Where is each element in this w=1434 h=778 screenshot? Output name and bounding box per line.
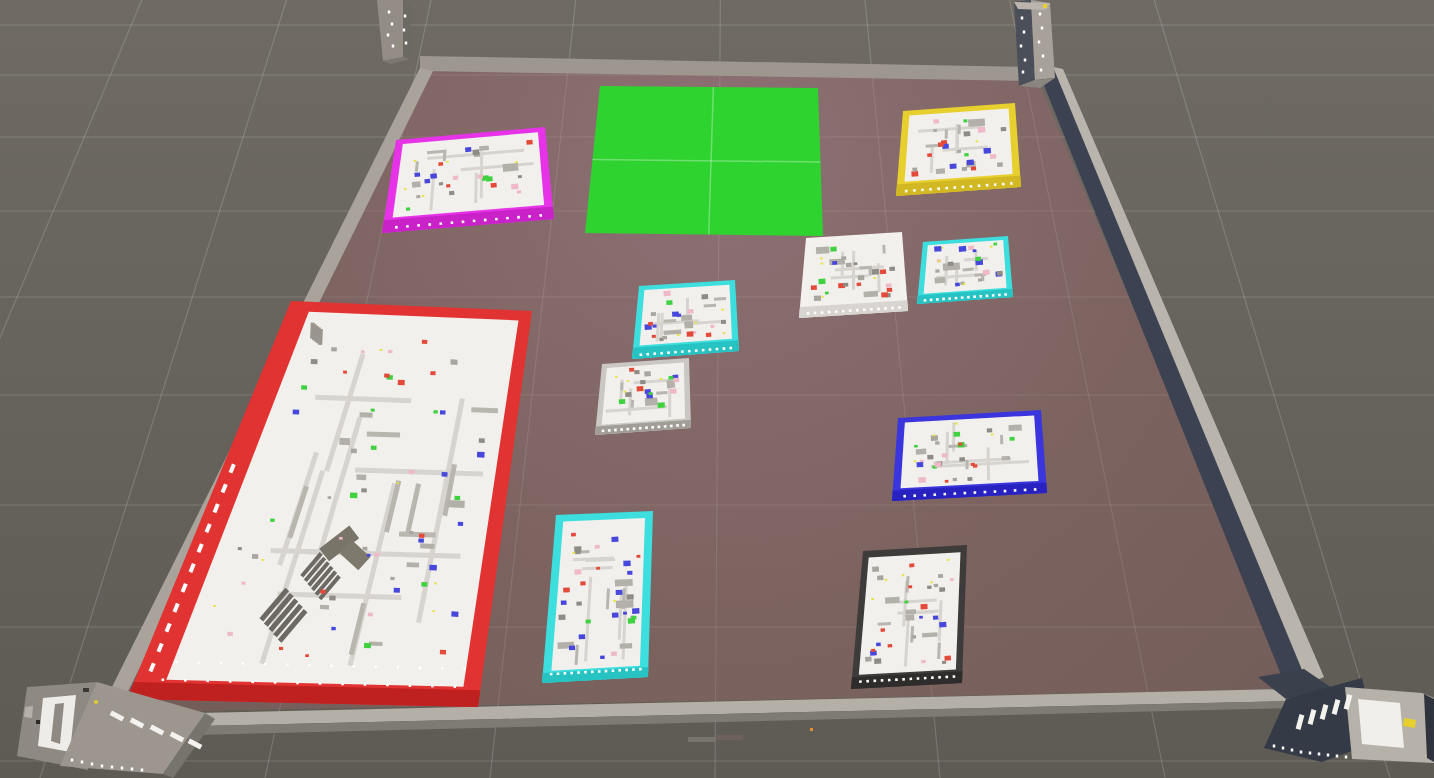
scene-detail xyxy=(330,664,332,666)
scene-detail xyxy=(955,283,960,287)
scene-detail xyxy=(388,350,392,353)
scene-detail xyxy=(343,371,347,374)
scene-detail xyxy=(361,488,367,492)
scene-detail xyxy=(350,492,358,498)
scene-detail xyxy=(660,352,663,355)
scene-detail xyxy=(881,628,886,632)
scene-detail xyxy=(262,559,265,561)
scene-detail xyxy=(970,185,973,188)
scene-detail xyxy=(921,188,924,191)
scene-detail xyxy=(320,590,325,594)
scene-detail xyxy=(511,184,519,190)
house-gray[interactable] xyxy=(595,358,691,435)
scene-detail xyxy=(933,493,936,496)
scene-detail xyxy=(251,681,254,684)
scene-detail xyxy=(930,581,933,583)
scene-detail xyxy=(936,298,939,301)
scene-detail xyxy=(473,219,476,222)
scene-detail xyxy=(973,249,977,252)
scene-detail xyxy=(984,491,987,494)
scene-detail xyxy=(446,161,449,163)
scene-detail xyxy=(651,426,654,429)
scene-canvas[interactable] xyxy=(0,0,1434,778)
scene-detail xyxy=(846,263,852,268)
scene-detail xyxy=(605,670,608,673)
scene-detail xyxy=(961,296,964,299)
scene-detail xyxy=(919,616,923,619)
scene-detail xyxy=(938,260,941,262)
scene-detail xyxy=(963,492,966,495)
scene-detail xyxy=(517,216,520,219)
scene-detail xyxy=(905,614,914,620)
scene-detail xyxy=(371,409,375,412)
game-viewport[interactable] xyxy=(0,0,1434,778)
scene-detail xyxy=(611,651,617,656)
scene-detail xyxy=(955,297,958,300)
bunker-bottom-left-face-3 xyxy=(24,706,33,718)
scene-detail xyxy=(1001,127,1007,131)
scene-detail xyxy=(645,426,648,429)
scene-detail xyxy=(625,669,628,672)
scene-detail xyxy=(904,600,908,603)
scene-detail xyxy=(902,574,905,576)
scene-detail xyxy=(729,347,732,350)
scene-detail xyxy=(296,682,299,685)
scene-detail xyxy=(409,470,415,475)
scene-detail xyxy=(942,298,945,301)
scene-detail xyxy=(270,519,275,523)
scene-detail xyxy=(580,581,585,585)
scene-detail xyxy=(924,299,927,302)
scene-detail xyxy=(368,613,373,617)
scene-detail xyxy=(849,309,852,312)
scene-detail xyxy=(220,662,222,664)
scene-detail xyxy=(434,582,437,584)
scene-detail xyxy=(570,672,573,675)
scene-detail xyxy=(902,678,905,681)
scene-detail xyxy=(640,380,646,384)
scene-detail xyxy=(973,464,978,468)
scene-detail xyxy=(319,682,322,685)
scene-detail xyxy=(687,331,694,336)
scene-detail xyxy=(978,127,986,133)
scene-detail xyxy=(927,455,933,460)
scene-detail xyxy=(955,423,958,425)
scene-detail xyxy=(616,600,634,608)
scene-detail xyxy=(518,175,522,178)
scene-detail xyxy=(229,680,232,683)
scene-detail xyxy=(953,478,957,481)
scene-detail xyxy=(359,412,372,417)
scene-detail xyxy=(937,187,940,190)
scene-detail xyxy=(279,647,283,650)
scene-detail xyxy=(721,309,724,311)
scene-detail xyxy=(670,425,673,428)
scene-detail xyxy=(364,683,367,686)
scene-detail xyxy=(1291,749,1294,752)
scene-detail xyxy=(873,277,876,279)
scene-detail xyxy=(963,131,970,136)
scene-detail xyxy=(1041,27,1044,30)
scene-detail xyxy=(1034,488,1037,491)
scene-detail xyxy=(922,632,938,637)
scene-detail xyxy=(992,294,995,297)
scene-detail xyxy=(912,167,917,171)
debris xyxy=(688,737,716,742)
scene-detail xyxy=(961,186,964,189)
scene-detail xyxy=(660,378,663,380)
scene-detail xyxy=(911,171,918,177)
scene-detail xyxy=(450,359,457,365)
scene-detail xyxy=(453,176,459,180)
scene-detail xyxy=(978,184,981,187)
scene-detail xyxy=(694,322,697,324)
green-spawn-zone[interactable] xyxy=(585,86,823,236)
scene-detail xyxy=(895,678,898,681)
house-cyan-right[interactable] xyxy=(917,236,1013,304)
scene-detail xyxy=(1010,182,1013,185)
scene-detail xyxy=(414,160,417,162)
scene-detail xyxy=(920,604,927,610)
scene-detail xyxy=(328,496,332,499)
scene-detail xyxy=(716,348,719,351)
scene-detail xyxy=(950,578,954,581)
scene-detail xyxy=(571,533,576,537)
scene-detail xyxy=(639,668,642,671)
scene-detail xyxy=(953,432,960,437)
scene-detail xyxy=(914,445,918,448)
scene-detail xyxy=(213,605,216,607)
scene-detail xyxy=(409,531,413,534)
scene-detail xyxy=(626,594,633,600)
scene-detail xyxy=(963,283,966,285)
scene-detail xyxy=(681,350,684,353)
scene-detail xyxy=(872,566,879,571)
scene-detail xyxy=(419,534,425,538)
scene-detail xyxy=(320,605,329,610)
scene-detail xyxy=(486,176,493,181)
scene-detail xyxy=(816,246,830,254)
scene-detail xyxy=(620,428,623,431)
scene-detail xyxy=(390,577,394,580)
scene-detail xyxy=(429,565,437,571)
scene-detail xyxy=(311,359,318,364)
scene-detail xyxy=(934,246,941,252)
scene-detail xyxy=(876,643,881,647)
scene-detail xyxy=(909,563,914,567)
scene-detail xyxy=(433,410,437,413)
scene-detail xyxy=(959,457,965,461)
scene-detail xyxy=(449,191,455,195)
scene-detail xyxy=(929,188,932,191)
scene-detail xyxy=(293,409,300,414)
scene-detail xyxy=(632,608,640,614)
scene-detail xyxy=(375,666,377,668)
scene-detail xyxy=(374,553,379,557)
scene-detail xyxy=(584,671,587,674)
scene-detail xyxy=(706,333,712,337)
scene-detail xyxy=(241,582,245,585)
house-cyan-center[interactable] xyxy=(632,280,739,359)
scene-detail xyxy=(1042,55,1045,58)
scene-detail xyxy=(677,334,680,336)
scene-detail xyxy=(612,669,615,672)
scene-detail xyxy=(886,283,892,287)
scene-detail xyxy=(935,462,942,467)
scene-detail xyxy=(973,295,976,298)
scene-detail xyxy=(141,769,144,772)
scene-detail xyxy=(451,611,458,617)
scene-detail xyxy=(881,679,884,682)
scene-detail xyxy=(935,269,939,272)
house-magenta[interactable] xyxy=(382,127,554,233)
scene-detail xyxy=(419,667,421,669)
grid-line xyxy=(471,410,498,411)
scene-detail xyxy=(439,222,442,225)
scene-detail xyxy=(888,644,893,648)
scene-detail xyxy=(921,660,926,664)
scene-detail xyxy=(1020,45,1023,48)
scene-detail xyxy=(830,247,837,252)
scene-detail xyxy=(684,321,693,329)
scene-detail xyxy=(453,685,456,688)
scene-detail xyxy=(963,119,967,122)
scene-detail xyxy=(856,309,859,312)
scene-detail xyxy=(723,332,726,334)
scene-detail xyxy=(598,670,601,673)
grid-line xyxy=(416,161,417,171)
scene-detail xyxy=(440,410,446,414)
scene-detail xyxy=(820,257,823,259)
grid-line xyxy=(931,146,932,173)
scene-detail xyxy=(404,188,407,190)
grid-line xyxy=(963,269,974,270)
scene-detail xyxy=(627,571,632,575)
scene-detail xyxy=(611,537,618,542)
scene-detail xyxy=(885,579,888,581)
scene-detail xyxy=(274,681,277,684)
scene-detail xyxy=(677,314,681,317)
scene-detail xyxy=(968,118,985,126)
bunker-bottom-right-face-3 xyxy=(1358,699,1404,748)
scene-detail xyxy=(577,671,580,674)
scene-detail xyxy=(329,595,336,600)
scene-detail xyxy=(602,430,605,433)
scene-detail xyxy=(600,656,605,660)
scene-detail xyxy=(634,370,639,374)
grid-line xyxy=(657,313,659,341)
scene-detail xyxy=(1024,489,1027,492)
scene-detail xyxy=(479,146,489,151)
scene-detail xyxy=(406,225,409,228)
scene-detail xyxy=(872,269,879,275)
scene-detail xyxy=(978,278,982,281)
grid-line xyxy=(714,299,726,300)
scene-detail xyxy=(942,661,946,664)
scene-detail xyxy=(339,537,343,540)
scene-detail xyxy=(821,311,824,314)
scene-detail xyxy=(569,645,575,650)
scene-detail xyxy=(576,601,582,605)
scene-detail xyxy=(463,668,465,670)
scene-detail xyxy=(619,399,626,404)
scene-detail xyxy=(502,163,518,172)
scene-detail xyxy=(286,663,288,665)
scene-detail xyxy=(484,219,487,222)
house-cyan-tall[interactable] xyxy=(542,511,653,683)
scene-detail xyxy=(71,759,74,762)
scene-detail xyxy=(998,294,1001,297)
scene-detail xyxy=(633,427,636,430)
scene-detail xyxy=(526,140,533,145)
scene-detail xyxy=(616,590,623,595)
scene-detail xyxy=(94,701,98,704)
scene-detail xyxy=(391,23,394,26)
scene-detail xyxy=(987,428,993,432)
scene-detail xyxy=(938,574,943,578)
scene-detail xyxy=(458,522,463,526)
scene-detail xyxy=(997,162,1003,167)
scene-detail xyxy=(859,680,862,683)
scene-detail xyxy=(884,307,887,310)
grid-line xyxy=(878,623,891,624)
scene-detail xyxy=(1273,745,1276,748)
scene-detail xyxy=(1024,59,1027,62)
grid-line xyxy=(656,392,667,393)
scene-detail xyxy=(1309,752,1312,755)
scene-detail xyxy=(175,661,177,663)
grid-line xyxy=(926,145,940,146)
scene-detail xyxy=(1010,437,1015,441)
scene-detail xyxy=(688,737,716,742)
scene-detail xyxy=(649,392,653,395)
scene-detail xyxy=(595,545,600,549)
scene-detail xyxy=(814,295,821,301)
scene-detail xyxy=(428,223,431,226)
scene-detail xyxy=(83,688,89,692)
scene-detail xyxy=(1022,71,1025,74)
scene-detail xyxy=(631,616,636,620)
scene-detail xyxy=(404,15,407,18)
scene-detail xyxy=(905,190,908,193)
scene-detail xyxy=(913,189,916,192)
scene-detail xyxy=(387,34,390,37)
scene-detail xyxy=(301,385,307,390)
scene-detail xyxy=(450,221,453,224)
scene-detail xyxy=(198,661,200,663)
scene-detail xyxy=(586,619,591,623)
grid-line xyxy=(399,534,436,535)
scene-detail xyxy=(936,168,945,174)
scene-detail xyxy=(938,676,941,679)
scene-detail xyxy=(950,163,957,169)
scene-detail xyxy=(983,148,991,154)
scene-detail xyxy=(701,294,708,299)
scene-detail xyxy=(495,218,498,221)
scene-detail xyxy=(238,547,242,550)
scene-detail xyxy=(442,472,448,477)
scene-detail xyxy=(430,371,435,375)
scene-detail xyxy=(709,348,712,351)
scene-detail xyxy=(414,172,420,177)
scene-detail xyxy=(857,282,862,286)
house-blue[interactable] xyxy=(892,410,1047,501)
scene-detail xyxy=(832,261,837,265)
scene-detail xyxy=(807,312,810,315)
scene-detail xyxy=(967,477,972,481)
scene-detail xyxy=(976,140,979,142)
scene-detail xyxy=(842,310,845,313)
scene-detail xyxy=(264,663,266,665)
scene-detail xyxy=(386,684,389,687)
house-yellow[interactable] xyxy=(896,103,1021,196)
grid-line xyxy=(278,594,402,597)
scene-detail xyxy=(903,495,906,498)
scene-detail xyxy=(663,290,671,296)
scene-detail xyxy=(430,173,437,178)
scene-detail xyxy=(676,424,679,427)
scene-detail xyxy=(574,546,581,552)
house-white[interactable] xyxy=(799,232,908,318)
scene-detail xyxy=(406,207,410,210)
scene-detail xyxy=(1008,424,1022,431)
scene-detail xyxy=(528,215,531,218)
scene-detail xyxy=(909,678,912,681)
scene-detail xyxy=(911,635,916,639)
scene-detail xyxy=(997,271,1003,276)
scene-detail xyxy=(405,42,408,45)
scene-detail xyxy=(908,585,912,588)
scene-detail xyxy=(625,392,631,397)
scene-detail xyxy=(515,161,518,163)
scene-detail xyxy=(939,622,946,628)
scene-detail xyxy=(1039,13,1042,16)
scene-detail xyxy=(91,763,94,766)
scene-detail xyxy=(721,320,726,324)
scene-detail xyxy=(626,428,629,431)
scene-detail xyxy=(573,552,576,554)
grid-line xyxy=(586,559,615,560)
scene-detail xyxy=(339,438,350,445)
scene-detail xyxy=(462,220,465,223)
scene-detail xyxy=(1038,41,1041,44)
scene-detail xyxy=(664,425,667,428)
scene-detail xyxy=(948,297,951,300)
scene-detail xyxy=(994,490,997,493)
scene-detail xyxy=(440,650,446,655)
scene-detail xyxy=(397,666,399,668)
scene-detail xyxy=(666,300,672,305)
scene-detail xyxy=(424,179,430,184)
scene-detail xyxy=(361,350,365,353)
scene-detail xyxy=(931,676,934,679)
scene-detail xyxy=(121,767,124,770)
scene-detail xyxy=(561,600,567,604)
scene-detail xyxy=(866,680,869,683)
house-black[interactable] xyxy=(851,545,967,689)
scene-detail xyxy=(591,670,594,673)
scene-detail xyxy=(646,353,649,356)
scene-detail xyxy=(618,669,621,672)
scene-detail xyxy=(615,376,618,378)
scene-detail xyxy=(916,462,923,467)
scene-detail xyxy=(131,768,134,771)
scene-detail xyxy=(384,374,390,378)
scene-detail xyxy=(308,664,310,666)
scene-detail xyxy=(853,262,857,265)
tower-top-right[interactable] xyxy=(1014,0,1055,88)
scene-detail xyxy=(1318,753,1321,756)
